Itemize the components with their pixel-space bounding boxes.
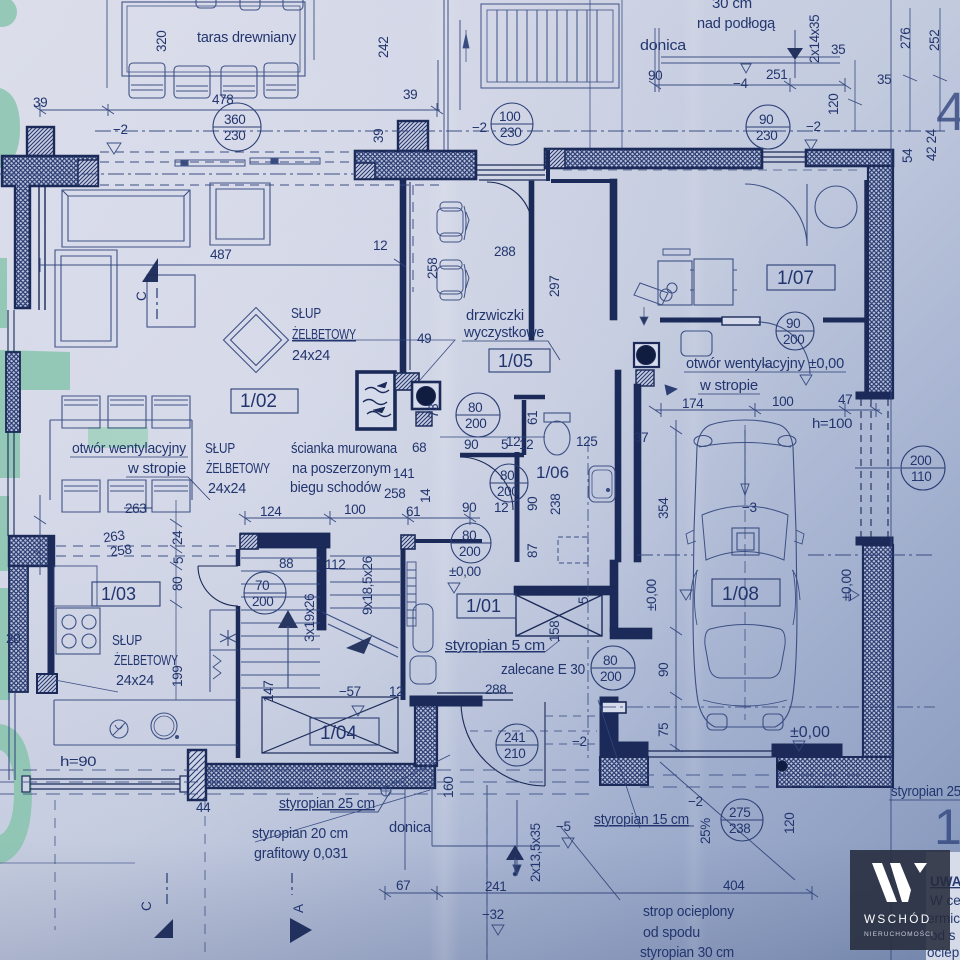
svg-text:288: 288 xyxy=(485,682,506,697)
svg-text:252: 252 xyxy=(927,30,942,51)
svg-text:238: 238 xyxy=(548,494,563,515)
svg-text:251: 251 xyxy=(766,67,787,82)
svg-text:zalecane E 30: zalecane E 30 xyxy=(501,661,585,678)
svg-text:47: 47 xyxy=(838,392,852,407)
svg-text:24x24: 24x24 xyxy=(116,672,154,689)
svg-text:35: 35 xyxy=(877,72,891,87)
svg-text:−5: −5 xyxy=(556,819,571,834)
svg-text:5: 5 xyxy=(171,557,186,564)
svg-text:ŻELBETOWY: ŻELBETOWY xyxy=(292,325,356,343)
svg-text:1/06: 1/06 xyxy=(536,463,569,482)
svg-text:5: 5 xyxy=(576,597,591,604)
svg-text:147: 147 xyxy=(261,681,276,702)
svg-text:241: 241 xyxy=(485,879,506,894)
svg-text:230: 230 xyxy=(500,125,521,140)
svg-text:14: 14 xyxy=(418,488,433,503)
svg-text:288: 288 xyxy=(494,244,515,259)
svg-text:100: 100 xyxy=(344,502,365,517)
svg-text:ścianka murowana: ścianka murowana xyxy=(291,440,398,457)
svg-text:320: 320 xyxy=(154,31,169,52)
svg-text:−2: −2 xyxy=(113,122,128,137)
svg-text:44: 44 xyxy=(196,800,211,815)
svg-text:90: 90 xyxy=(759,112,773,127)
svg-text:80: 80 xyxy=(468,400,482,415)
svg-text:SŁUP: SŁUP xyxy=(291,305,321,322)
svg-text:strop ocieplony: strop ocieplony xyxy=(643,903,735,920)
svg-text:drzwiczki: drzwiczki xyxy=(466,307,524,324)
svg-text:404: 404 xyxy=(723,878,745,893)
svg-text:C: C xyxy=(134,291,149,301)
svg-text:230: 230 xyxy=(756,128,777,143)
svg-text:24x24: 24x24 xyxy=(208,480,246,497)
svg-text:39: 39 xyxy=(403,87,417,102)
svg-text:200: 200 xyxy=(600,669,621,684)
svg-text:1: 1 xyxy=(934,799,960,855)
svg-text:1/04: 1/04 xyxy=(320,723,357,744)
svg-text:−2: −2 xyxy=(806,119,821,134)
svg-text:276: 276 xyxy=(898,28,913,49)
svg-text:9x18,5x26: 9x18,5x26 xyxy=(360,556,375,615)
svg-text:37: 37 xyxy=(634,430,648,445)
svg-text:200: 200 xyxy=(783,332,804,347)
svg-text:354: 354 xyxy=(656,497,671,519)
svg-text:100: 100 xyxy=(772,394,793,409)
svg-text:1/07: 1/07 xyxy=(777,268,814,289)
svg-text:125: 125 xyxy=(576,434,597,449)
svg-text:120: 120 xyxy=(826,94,841,115)
svg-text:174: 174 xyxy=(682,396,704,411)
svg-text:1/05: 1/05 xyxy=(498,351,533,371)
svg-text:158: 158 xyxy=(547,621,562,642)
svg-text:−57: −57 xyxy=(339,684,361,699)
svg-text:61: 61 xyxy=(406,504,420,519)
svg-text:2x14x35: 2x14x35 xyxy=(807,15,822,63)
svg-text:258: 258 xyxy=(109,541,132,559)
svg-text:238: 238 xyxy=(729,821,750,836)
svg-text:±0,00: ±0,00 xyxy=(839,569,854,601)
svg-text:SŁUP: SŁUP xyxy=(205,440,235,457)
svg-text:160: 160 xyxy=(441,777,456,798)
svg-text:80: 80 xyxy=(500,468,514,483)
svg-text:199: 199 xyxy=(170,666,185,687)
svg-text:54: 54 xyxy=(900,148,915,163)
svg-text:NIERUCHOMOŚCI: NIERUCHOMOŚCI xyxy=(864,929,934,938)
svg-text:230: 230 xyxy=(224,128,245,143)
svg-text:478: 478 xyxy=(212,92,233,107)
svg-text:1/03: 1/03 xyxy=(101,584,136,604)
svg-text:35: 35 xyxy=(831,42,845,57)
svg-text:styropian 25: styropian 25 xyxy=(891,783,960,800)
svg-text:h=100: h=100 xyxy=(812,416,852,431)
svg-text:2x13,5x35: 2x13,5x35 xyxy=(528,823,543,882)
svg-text:61: 61 xyxy=(525,411,540,425)
svg-text:styropian 20 cm: styropian 20 cm xyxy=(252,825,348,842)
svg-text:A: A xyxy=(291,904,306,913)
svg-text:70: 70 xyxy=(255,578,269,593)
svg-text:90: 90 xyxy=(656,663,671,677)
svg-text:styropian 15 cm: styropian 15 cm xyxy=(594,811,689,828)
svg-text:styropian 25 cm: styropian 25 cm xyxy=(279,795,375,812)
svg-text:3x19x26: 3x19x26 xyxy=(302,594,317,642)
svg-text:styropian 5 cm: styropian 5 cm xyxy=(445,637,545,654)
svg-text:200: 200 xyxy=(252,594,273,609)
svg-text:grafitowy 0,031: grafitowy 0,031 xyxy=(254,845,348,862)
svg-text:±0,00: ±0,00 xyxy=(449,564,481,579)
svg-text:wyczystkowe: wyczystkowe xyxy=(463,324,544,341)
svg-text:80: 80 xyxy=(462,528,476,543)
svg-text:88: 88 xyxy=(279,556,293,571)
svg-text:210: 210 xyxy=(504,746,525,761)
svg-text:90: 90 xyxy=(525,497,540,511)
svg-text:−2: −2 xyxy=(472,120,487,135)
svg-text:w stropie: w stropie xyxy=(127,460,186,477)
svg-text:49: 49 xyxy=(417,331,431,346)
svg-text:taras drewniany: taras drewniany xyxy=(197,29,297,46)
svg-text:242: 242 xyxy=(376,37,391,58)
svg-text:−32: −32 xyxy=(482,907,504,922)
svg-text:200: 200 xyxy=(465,416,486,431)
svg-text:39: 39 xyxy=(371,129,386,143)
svg-text:124: 124 xyxy=(260,504,282,519)
svg-text:241: 241 xyxy=(504,730,525,745)
svg-text:80: 80 xyxy=(603,653,617,668)
svg-text:112: 112 xyxy=(325,557,345,572)
svg-text:12: 12 xyxy=(373,238,387,253)
svg-text:otwór wentylacyjny: otwór wentylacyjny xyxy=(72,440,187,457)
svg-text:487: 487 xyxy=(210,247,231,262)
svg-text:ŻELBETOWY: ŻELBETOWY xyxy=(206,459,270,477)
svg-text:−4: −4 xyxy=(733,76,748,91)
svg-text:39: 39 xyxy=(33,95,47,110)
svg-text:110: 110 xyxy=(911,469,931,484)
svg-text:120: 120 xyxy=(782,813,797,834)
svg-text:258: 258 xyxy=(384,486,405,501)
svg-text:200: 200 xyxy=(910,453,931,468)
svg-text:100: 100 xyxy=(499,109,520,124)
svg-text:275: 275 xyxy=(729,805,750,820)
svg-text:90: 90 xyxy=(786,316,800,331)
svg-text:12: 12 xyxy=(519,437,533,452)
svg-text:−2: −2 xyxy=(572,734,587,749)
svg-text:258: 258 xyxy=(425,258,440,279)
svg-text:141: 141 xyxy=(393,466,414,481)
svg-text:90: 90 xyxy=(648,68,662,83)
svg-text:87: 87 xyxy=(525,544,540,558)
svg-text:12: 12 xyxy=(506,434,520,449)
svg-text:4: 4 xyxy=(936,82,960,142)
svg-text:200: 200 xyxy=(497,484,518,499)
svg-text:1/02: 1/02 xyxy=(240,391,277,412)
svg-text:ŻELBETOWY: ŻELBETOWY xyxy=(114,651,178,669)
svg-text:1/01: 1/01 xyxy=(466,596,501,616)
svg-text:na poszerzonym: na poszerzonym xyxy=(292,460,391,477)
svg-text:90: 90 xyxy=(462,500,476,515)
svg-text:nad podłogą: nad podłogą xyxy=(697,15,776,32)
svg-text:20: 20 xyxy=(6,631,20,646)
svg-text:80: 80 xyxy=(170,577,185,591)
svg-text:−3: −3 xyxy=(742,500,757,515)
svg-text:±0,00: ±0,00 xyxy=(790,724,830,741)
svg-text:24: 24 xyxy=(170,530,185,545)
svg-text:73: 73 xyxy=(426,404,441,418)
svg-text:297: 297 xyxy=(547,276,562,297)
svg-text:±0,00: ±0,00 xyxy=(644,579,659,611)
svg-text:1/08: 1/08 xyxy=(722,584,759,605)
svg-text:−2: −2 xyxy=(688,794,703,809)
svg-text:otwór wentylacyjny ±0,00: otwór wentylacyjny ±0,00 xyxy=(686,355,844,372)
svg-text:SŁUP: SŁUP xyxy=(112,632,142,649)
svg-text:C: C xyxy=(139,901,154,911)
svg-text:67: 67 xyxy=(396,878,410,893)
svg-text:biegu schodów: biegu schodów xyxy=(290,479,381,496)
svg-text:WSCHÓD: WSCHÓD xyxy=(864,912,932,926)
svg-text:od spodu: od spodu xyxy=(643,924,700,941)
svg-text:68: 68 xyxy=(412,440,426,455)
svg-text:25%: 25% xyxy=(698,818,713,844)
svg-text:30 cm: 30 cm xyxy=(712,0,752,12)
svg-text:donica: donica xyxy=(640,37,687,54)
svg-text:263: 263 xyxy=(125,501,146,516)
svg-text:24x24: 24x24 xyxy=(292,347,330,364)
svg-text:12: 12 xyxy=(389,684,403,699)
svg-text:360: 360 xyxy=(224,112,245,127)
svg-text:200: 200 xyxy=(459,544,480,559)
svg-text:12: 12 xyxy=(494,500,508,515)
svg-text:90: 90 xyxy=(464,437,478,452)
svg-text:75: 75 xyxy=(656,723,671,737)
svg-text:w stropie: w stropie xyxy=(699,377,758,394)
svg-text:styropian 30 cm: styropian 30 cm xyxy=(640,944,734,960)
svg-text:h=90: h=90 xyxy=(60,754,96,769)
svg-text:donica: donica xyxy=(389,819,432,836)
